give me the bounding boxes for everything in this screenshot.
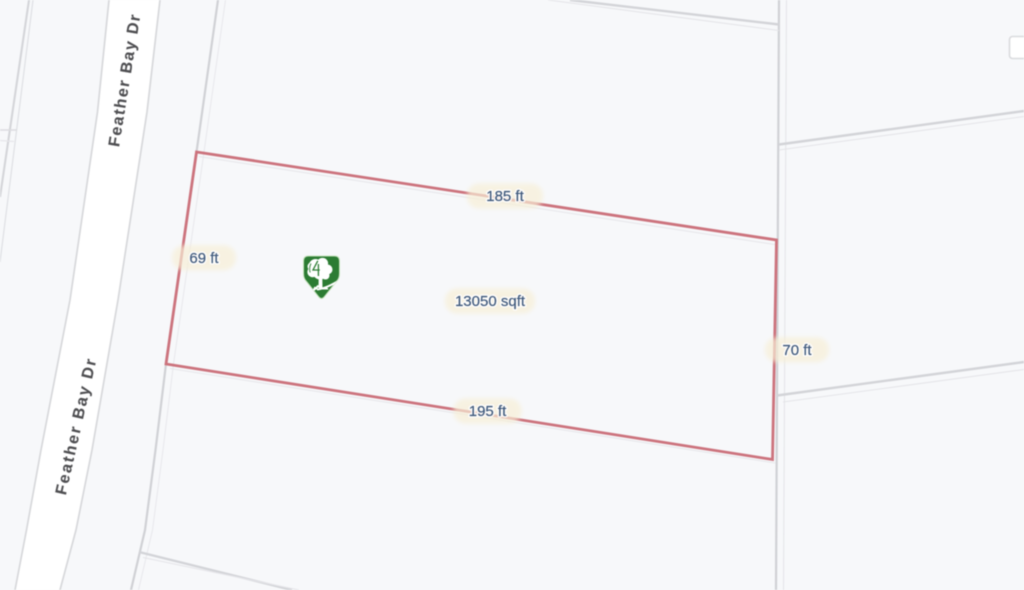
svg-text:13050 sqft: 13050 sqft <box>455 293 526 310</box>
svg-text:195 ft: 195 ft <box>469 403 507 420</box>
svg-text:69 ft: 69 ft <box>189 250 219 267</box>
svg-text:185 ft: 185 ft <box>486 188 524 205</box>
svg-text:70 ft: 70 ft <box>782 342 812 359</box>
